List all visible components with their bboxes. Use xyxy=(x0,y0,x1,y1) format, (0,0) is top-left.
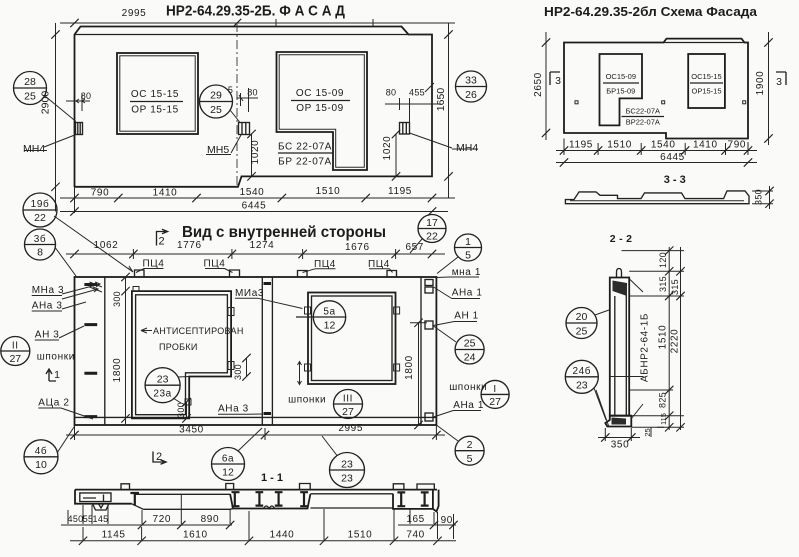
svg-text:ОР15-15: ОР15-15 xyxy=(691,87,721,96)
svg-text:25: 25 xyxy=(576,326,588,338)
svg-text:23а: 23а xyxy=(153,389,172,400)
svg-text:3б: 3б xyxy=(34,233,47,245)
svg-text:МН4: МН4 xyxy=(456,142,478,154)
svg-text:450: 450 xyxy=(68,514,84,524)
svg-text:1510: 1510 xyxy=(316,186,341,197)
svg-text:1540: 1540 xyxy=(240,187,265,198)
svg-text:6445: 6445 xyxy=(242,201,267,212)
svg-text:80: 80 xyxy=(386,88,397,98)
svg-text:825: 825 xyxy=(658,392,668,408)
svg-text:315: 315 xyxy=(670,279,680,295)
svg-text:29: 29 xyxy=(210,90,222,102)
svg-text:2650: 2650 xyxy=(533,72,544,97)
svg-text:АНа 1: АНа 1 xyxy=(452,288,483,299)
svg-text:1062: 1062 xyxy=(94,240,119,251)
svg-text:1: 1 xyxy=(465,236,471,248)
svg-text:БС22-07А: БС22-07А xyxy=(626,107,660,116)
svg-text:2: 2 xyxy=(158,236,164,248)
svg-text:300: 300 xyxy=(233,364,243,380)
svg-text:350: 350 xyxy=(754,189,764,205)
svg-text:Вид с внутренней стороны: Вид с внутренней стороны xyxy=(182,224,386,241)
svg-text:5: 5 xyxy=(228,85,233,95)
svg-text:19б: 19б xyxy=(31,198,50,210)
svg-text:1440: 1440 xyxy=(270,530,295,541)
svg-text:1510: 1510 xyxy=(348,530,373,541)
svg-text:740: 740 xyxy=(406,530,425,541)
svg-text:22: 22 xyxy=(34,212,46,224)
svg-text:1610: 1610 xyxy=(183,530,208,541)
svg-text:АН 1: АН 1 xyxy=(454,311,479,322)
svg-text:1410: 1410 xyxy=(693,140,718,151)
svg-text:145: 145 xyxy=(93,514,109,524)
svg-text:1676: 1676 xyxy=(345,242,370,253)
svg-text:350: 350 xyxy=(611,440,630,451)
svg-text:I: I xyxy=(493,384,496,395)
svg-text:БР 22-07А: БР 22-07А xyxy=(278,157,332,168)
svg-text:3450: 3450 xyxy=(179,425,204,436)
svg-text:165: 165 xyxy=(406,514,425,525)
svg-text:23: 23 xyxy=(341,473,353,485)
svg-text:10: 10 xyxy=(35,459,47,471)
svg-text:МН4: МН4 xyxy=(23,143,45,155)
svg-text:АН 3: АН 3 xyxy=(35,330,60,341)
svg-text:АЦа 2: АЦа 2 xyxy=(38,398,69,409)
svg-text:1540: 1540 xyxy=(651,140,676,151)
svg-text:2995: 2995 xyxy=(122,8,147,19)
svg-text:АНа 3: АНа 3 xyxy=(32,301,63,312)
svg-text:8: 8 xyxy=(37,247,43,259)
svg-text:1510: 1510 xyxy=(607,140,632,151)
svg-text:АНТИСЕПТИРОВАН: АНТИСЕПТИРОВАН xyxy=(153,326,244,336)
svg-text:120: 120 xyxy=(658,252,668,268)
svg-text:3: 3 xyxy=(776,76,782,88)
svg-text:ОС 15-15: ОС 15-15 xyxy=(131,89,179,100)
svg-text:25: 25 xyxy=(24,91,36,103)
svg-text:890: 890 xyxy=(201,514,220,525)
svg-text:455: 455 xyxy=(409,88,425,98)
svg-text:23: 23 xyxy=(157,374,169,386)
svg-text:790: 790 xyxy=(91,188,110,199)
svg-text:2 - 2: 2 - 2 xyxy=(610,233,633,245)
svg-text:6а: 6а xyxy=(222,454,234,465)
svg-text:шпонки: шпонки xyxy=(288,395,326,406)
svg-text:5: 5 xyxy=(465,250,471,262)
svg-text:АБНР2-64-1Б: АБНР2-64-1Б xyxy=(640,313,651,382)
svg-text:300: 300 xyxy=(176,402,186,418)
svg-text:2220: 2220 xyxy=(670,329,681,354)
svg-text:НР2-64.29.35-2бл Схема Фасада: НР2-64.29.35-2бл Схема Фасада xyxy=(544,4,758,19)
svg-text:315: 315 xyxy=(658,276,668,292)
svg-text:300: 300 xyxy=(112,291,122,307)
svg-text:1: 1 xyxy=(54,369,60,381)
svg-text:4б: 4б xyxy=(35,445,48,457)
svg-text:20: 20 xyxy=(576,311,588,323)
svg-text:МИа3: МИа3 xyxy=(235,288,264,299)
svg-text:1900: 1900 xyxy=(755,71,766,96)
svg-text:26: 26 xyxy=(465,89,477,101)
svg-text:27: 27 xyxy=(342,406,354,418)
svg-text:27: 27 xyxy=(9,353,21,365)
svg-text:115: 115 xyxy=(659,413,668,425)
svg-text:ПРОБКИ: ПРОБКИ xyxy=(159,342,198,352)
svg-text:24: 24 xyxy=(464,352,476,364)
svg-text:1195: 1195 xyxy=(569,140,593,151)
svg-text:1510: 1510 xyxy=(658,325,669,350)
svg-text:1020: 1020 xyxy=(250,140,261,165)
svg-text:5а: 5а xyxy=(323,306,335,317)
svg-text:АНа 1: АНа 1 xyxy=(453,400,484,411)
svg-text:НР2-64.29.35-2Б. Ф А С А Д: НР2-64.29.35-2Б. Ф А С А Д xyxy=(166,3,345,20)
svg-text:2: 2 xyxy=(467,439,473,451)
svg-text:мна 1: мна 1 xyxy=(452,267,481,278)
svg-text:шпонки: шпонки xyxy=(37,352,75,363)
svg-text:25: 25 xyxy=(210,104,222,116)
svg-text:23: 23 xyxy=(341,459,353,471)
svg-text:1650: 1650 xyxy=(435,88,447,112)
svg-text:27: 27 xyxy=(489,396,501,408)
svg-text:3 - 3: 3 - 3 xyxy=(664,174,686,186)
svg-text:23: 23 xyxy=(576,380,588,392)
svg-text:22: 22 xyxy=(426,231,438,243)
svg-text:1274: 1274 xyxy=(250,240,275,251)
svg-text:17: 17 xyxy=(426,217,438,229)
svg-text:5: 5 xyxy=(467,453,473,465)
svg-text:6445: 6445 xyxy=(660,152,685,163)
svg-text:АНа 3: АНа 3 xyxy=(218,404,249,415)
svg-text:24б: 24б xyxy=(572,365,591,377)
svg-text:1800: 1800 xyxy=(112,358,123,383)
svg-text:2: 2 xyxy=(156,451,162,463)
svg-text:ОР 15-15: ОР 15-15 xyxy=(131,105,179,116)
svg-text:25: 25 xyxy=(643,428,652,436)
svg-text:90: 90 xyxy=(441,515,453,526)
svg-text:1195: 1195 xyxy=(388,186,412,197)
svg-text:ПЦ4: ПЦ4 xyxy=(204,259,226,270)
svg-text:1410: 1410 xyxy=(153,188,178,199)
svg-text:МНа 3: МНа 3 xyxy=(32,285,64,296)
svg-text:790: 790 xyxy=(728,140,747,151)
svg-text:2900: 2900 xyxy=(40,91,52,115)
svg-text:12: 12 xyxy=(222,467,234,479)
svg-text:1776: 1776 xyxy=(177,240,202,251)
svg-text:12: 12 xyxy=(324,319,336,331)
svg-text:25: 25 xyxy=(464,338,476,350)
svg-text:720: 720 xyxy=(153,514,172,525)
svg-text:ОР 15-09: ОР 15-09 xyxy=(296,103,344,114)
svg-text:ОС15-15: ОС15-15 xyxy=(691,72,721,81)
svg-text:1145: 1145 xyxy=(102,530,126,541)
svg-text:III: III xyxy=(343,394,353,405)
svg-text:ОС 15-09: ОС 15-09 xyxy=(296,88,344,99)
svg-text:ПЦ4: ПЦ4 xyxy=(143,259,165,270)
svg-text:33: 33 xyxy=(465,75,477,87)
svg-text:1020: 1020 xyxy=(382,136,393,161)
svg-text:3: 3 xyxy=(555,75,561,87)
svg-text:2995: 2995 xyxy=(338,423,363,434)
svg-text:1 - 1: 1 - 1 xyxy=(261,472,283,484)
svg-text:28: 28 xyxy=(24,76,36,88)
svg-text:БР15-09: БР15-09 xyxy=(606,87,635,96)
svg-text:БС 22-07А: БС 22-07А xyxy=(278,142,332,153)
svg-text:1800: 1800 xyxy=(404,355,415,380)
svg-text:ОС15-09: ОС15-09 xyxy=(606,72,636,81)
svg-text:II: II xyxy=(12,341,19,352)
svg-text:ВР22-07А: ВР22-07А xyxy=(626,118,660,127)
